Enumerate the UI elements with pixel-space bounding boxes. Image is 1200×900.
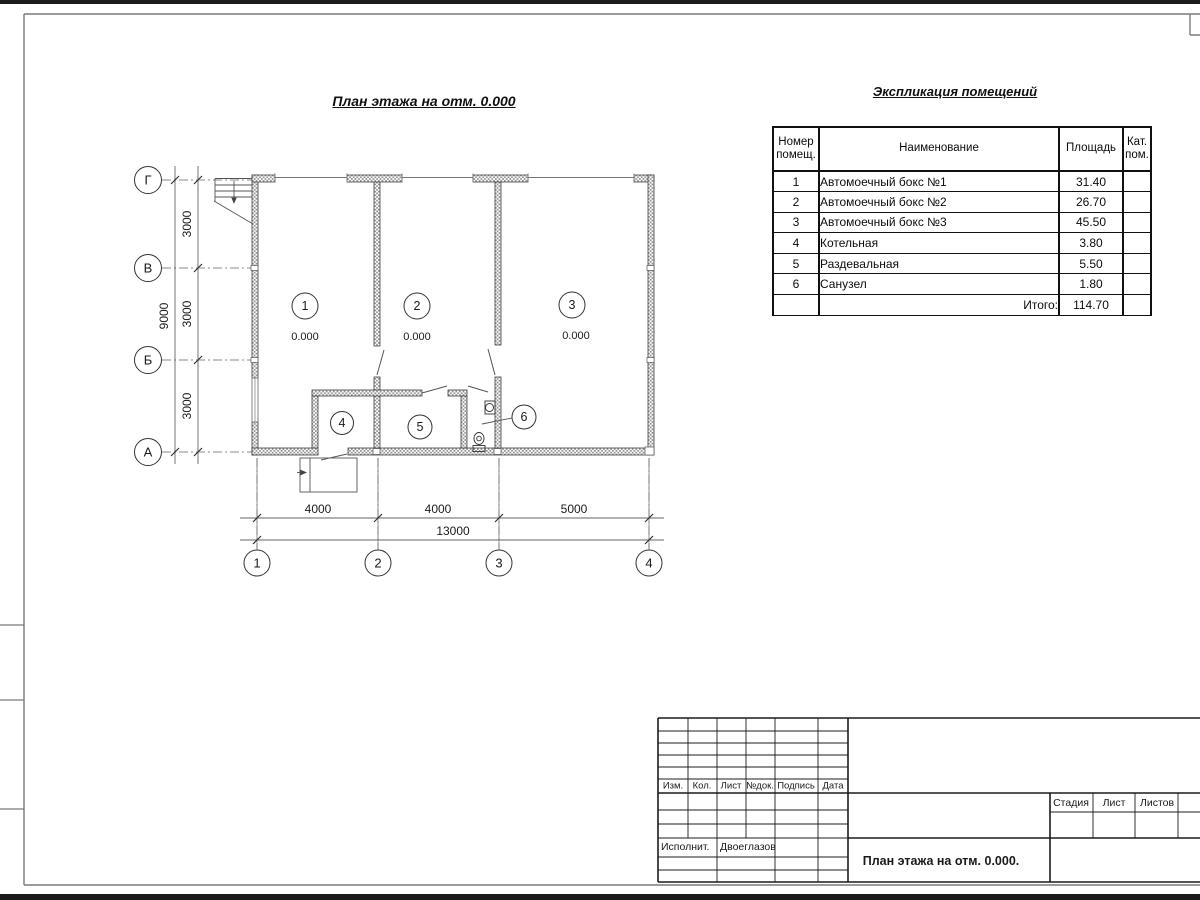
dim-bottom-total: 13000 — [436, 524, 470, 538]
axis-label: Б — [144, 353, 153, 368]
title-block: Изм. Кол. Лист №док. Подпись Дата Исполн… — [658, 718, 1200, 882]
tb-executor-label: Исполнит. — [661, 841, 709, 853]
entrance-porch — [297, 458, 357, 492]
tb-col-data: Дата — [822, 781, 844, 792]
tb-col-list: Лист — [721, 781, 742, 792]
dim-left-segment: 3000 — [180, 392, 194, 419]
axis-label: 4 — [645, 556, 652, 571]
axis-label: 3 — [495, 556, 502, 571]
room-labels: 1 2 3 4 5 6 0.000 0.000 0.000 — [291, 292, 590, 439]
tb-stage-label: Стадия — [1053, 797, 1089, 809]
room-elevation: 0.000 — [562, 330, 590, 342]
dim-bottom-segment: 5000 — [561, 502, 588, 516]
dim-left-segment: 3000 — [180, 210, 194, 237]
room-elevation: 0.000 — [403, 331, 431, 343]
tb-sheet-label: Лист — [1103, 797, 1126, 809]
tb-sheets-label: Листов — [1140, 797, 1175, 809]
floor-plan: 3000 3000 3000 9000 4000 4000 5000 13000… — [135, 166, 665, 576]
dimension-labels: 3000 3000 3000 9000 4000 4000 5000 13000 — [157, 210, 588, 538]
tb-col-izm: Изм. — [663, 781, 683, 792]
left-margin-cells — [0, 625, 24, 809]
tb-col-podpis: Подпись — [777, 781, 815, 792]
axis-label: А — [144, 445, 153, 460]
dimension-lines — [175, 166, 664, 550]
axis-grid-lines — [162, 180, 649, 549]
sink-icon — [485, 401, 495, 414]
room-bubble-number: 2 — [414, 299, 421, 313]
room-bubble-number: 5 — [417, 420, 424, 434]
wall-axis-notches — [251, 266, 654, 456]
room-bubble-number: 3 — [569, 298, 576, 312]
axis-label: 1 — [253, 556, 260, 571]
axis-label: В — [144, 261, 153, 276]
tb-doc-title: План этажа на отм. 0.000. — [863, 854, 1020, 868]
room-elevation: 0.000 — [291, 331, 319, 343]
room-bubble-number: 1 — [302, 299, 309, 313]
dim-bottom-segment: 4000 — [305, 502, 332, 516]
room-bubble-number: 6 — [521, 410, 528, 424]
axis-label: Г — [144, 173, 151, 188]
room-bubble-number: 4 — [339, 416, 346, 430]
dim-left-segment: 3000 — [180, 300, 194, 327]
axis-label: 2 — [374, 556, 381, 571]
drawing-sheet: { "colors": { "paper": "#ffffff", "ink":… — [0, 0, 1200, 900]
stairs-icon — [214, 179, 253, 225]
door-leaves — [321, 349, 495, 460]
tb-col-ndok: №док. — [746, 781, 774, 792]
tb-col-kol: Кол. — [693, 781, 712, 792]
tb-executor-name: Двоеглазов — [720, 841, 776, 853]
drawing-canvas: 3000 3000 3000 9000 4000 4000 5000 13000… — [0, 0, 1200, 900]
dim-left-total: 9000 — [157, 302, 171, 329]
dim-bottom-segment: 4000 — [425, 502, 452, 516]
